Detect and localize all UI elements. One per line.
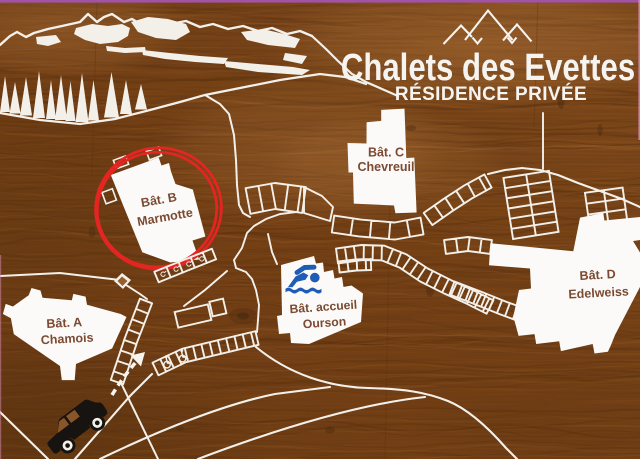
svg-text:Bât. D: Bât. D	[579, 267, 616, 283]
svg-text:Chevreuil: Chevreuil	[358, 160, 415, 174]
svg-text:Bât. C: Bât. C	[368, 146, 404, 160]
svg-text:Chalets des Evettes: Chalets des Evettes	[341, 47, 635, 89]
svg-text:Chamois: Chamois	[40, 331, 93, 348]
svg-text:RÉSIDENCE PRIVÉE: RÉSIDENCE PRIVÉE	[395, 83, 587, 105]
svg-text:Bât. A: Bât. A	[46, 315, 82, 331]
